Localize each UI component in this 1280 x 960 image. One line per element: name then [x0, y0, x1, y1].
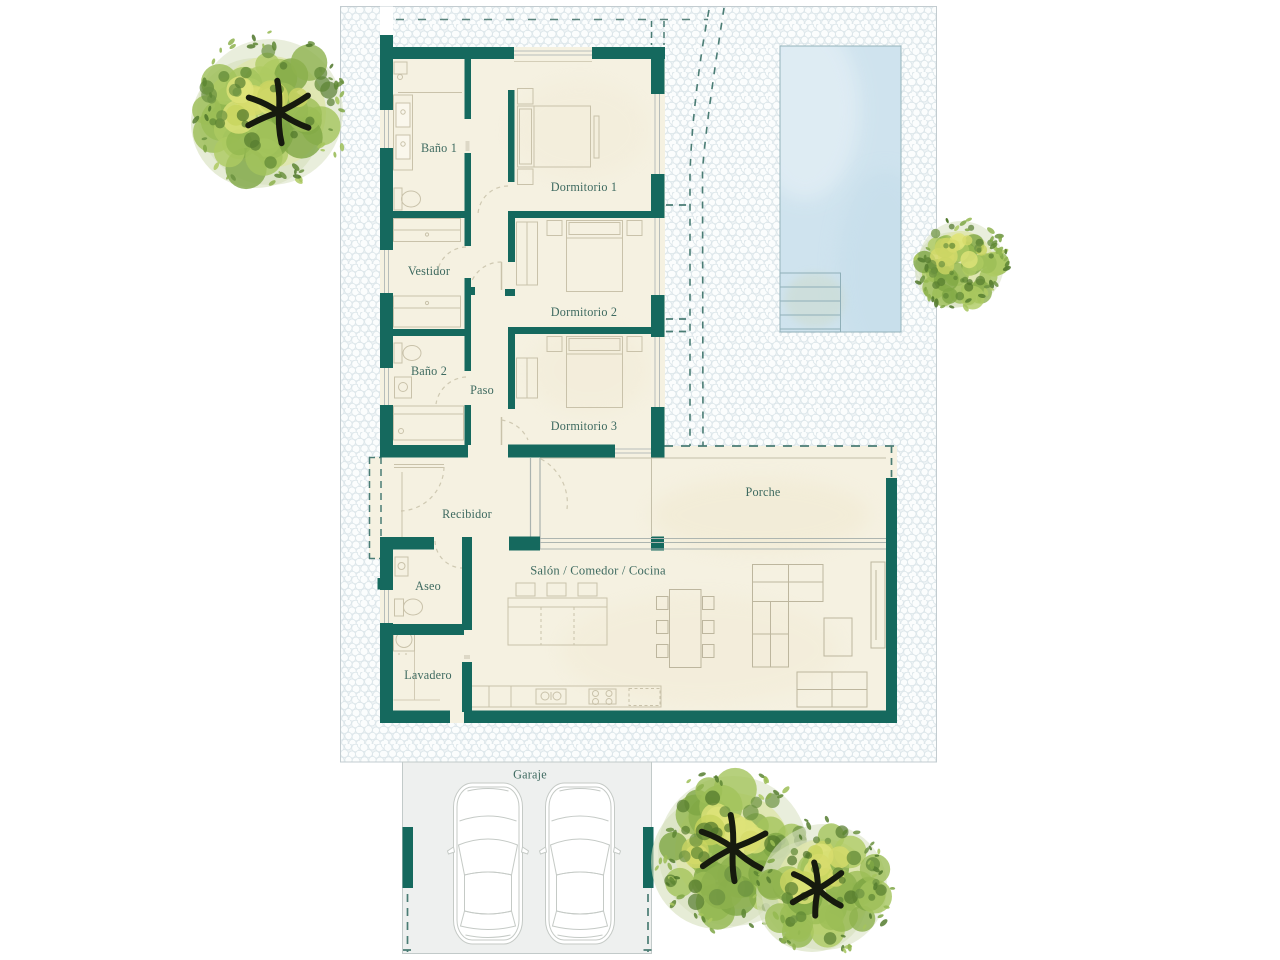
svg-text:Dormitorio 3: Dormitorio 3 [551, 419, 617, 433]
svg-text:Aseo: Aseo [415, 579, 441, 593]
svg-text:Dormitorio 1: Dormitorio 1 [551, 180, 617, 194]
svg-text:Porche: Porche [745, 485, 780, 499]
svg-text:Baño 2: Baño 2 [411, 364, 447, 378]
svg-text:Lavadero: Lavadero [404, 668, 452, 682]
svg-text:Vestidor: Vestidor [408, 264, 450, 278]
svg-text:Paso: Paso [470, 383, 494, 397]
svg-text:Recibidor: Recibidor [442, 507, 492, 521]
svg-text:Garaje: Garaje [513, 768, 547, 782]
svg-text:Baño 1: Baño 1 [421, 141, 457, 155]
svg-text:Dormitorio 2: Dormitorio 2 [551, 305, 617, 319]
svg-text:Salón / Comedor / Cocina: Salón / Comedor / Cocina [530, 564, 666, 578]
